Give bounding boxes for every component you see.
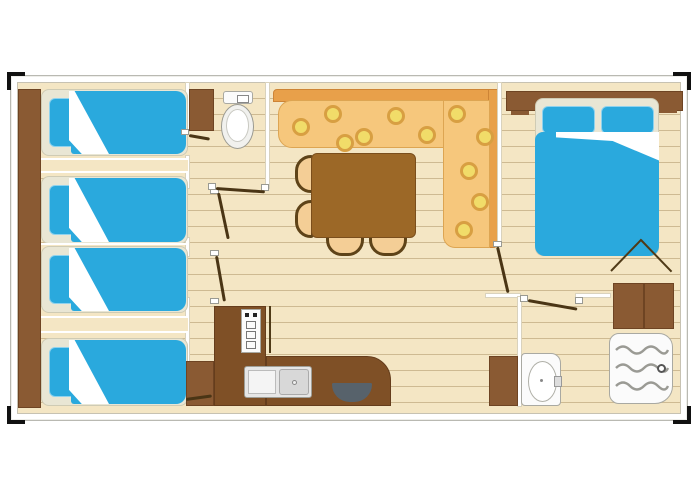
double-bed-pillow-left [542,106,595,134]
headboard-stub [511,111,529,115]
toilet-bowl [221,104,254,149]
bathroom-wardrobe [613,283,674,329]
door-frame [210,250,219,256]
door-frame [520,295,528,302]
floorplan [10,75,688,421]
door-frame [575,297,583,304]
sofa-motif [418,126,436,144]
toilet-seat [226,109,249,142]
door-frame [210,298,219,304]
bathroom-wall [486,294,520,297]
shower-drain [657,364,666,373]
sofa-motif [476,128,494,146]
sofa-motif [471,193,489,211]
door-frame [181,129,189,135]
sofa-motif [460,162,478,180]
bathroom-cabinet [489,356,518,406]
sofa-motif [292,118,310,136]
corner-mark-top-left [7,72,25,90]
screenshot-root: { "image_type": "mobile-home-floor-plan"… [0,0,700,500]
kitchen-sink [244,366,312,398]
wc-wall [266,83,269,188]
burner [246,341,256,349]
basin-tap [554,376,562,387]
stove [241,309,261,353]
burner-knob [245,313,249,317]
sofa-motif [324,105,342,123]
shower-tray [609,333,673,404]
single-bed-3 [41,246,188,313]
washbasin-counter [521,353,561,406]
toilet-cistern [223,91,253,104]
wall-line-between-twin-beds [41,243,188,245]
wall-bedroom2-bedroom3 [41,316,188,333]
single-bed-4 [41,338,188,406]
single-bed-2 [41,176,188,244]
burner-knob [253,313,257,317]
wall-bedroom1-bedroom2 [41,158,188,173]
double-bed-pillow-right [601,106,654,134]
single-bed-1 [41,89,188,156]
door-frame [208,183,216,190]
corner-mark-bottom-left [7,406,25,424]
sofa-motif [387,107,405,125]
wardrobe-bedroom1 [189,89,214,131]
headboard-stub [659,109,677,113]
living-master-wall [498,83,501,246]
sink-drain [292,380,297,385]
basin-drain [540,379,543,382]
flush-button [237,95,249,103]
dining-table [311,153,416,238]
corner-mark-bottom-right [673,406,691,424]
kitchen-partition-leaf [269,306,271,353]
sink-drainer [248,370,276,394]
sofa-motif [355,128,373,146]
burner [246,331,256,339]
wardrobe-strip-left-wall [18,89,41,408]
corner-mark-top-right [673,72,691,90]
wardrobe-door-split [643,284,645,328]
sofa-motif [448,105,466,123]
sink-bowl [279,369,309,395]
sofa-motif [455,221,473,239]
burner [246,321,256,329]
sofa-motif [336,134,354,152]
